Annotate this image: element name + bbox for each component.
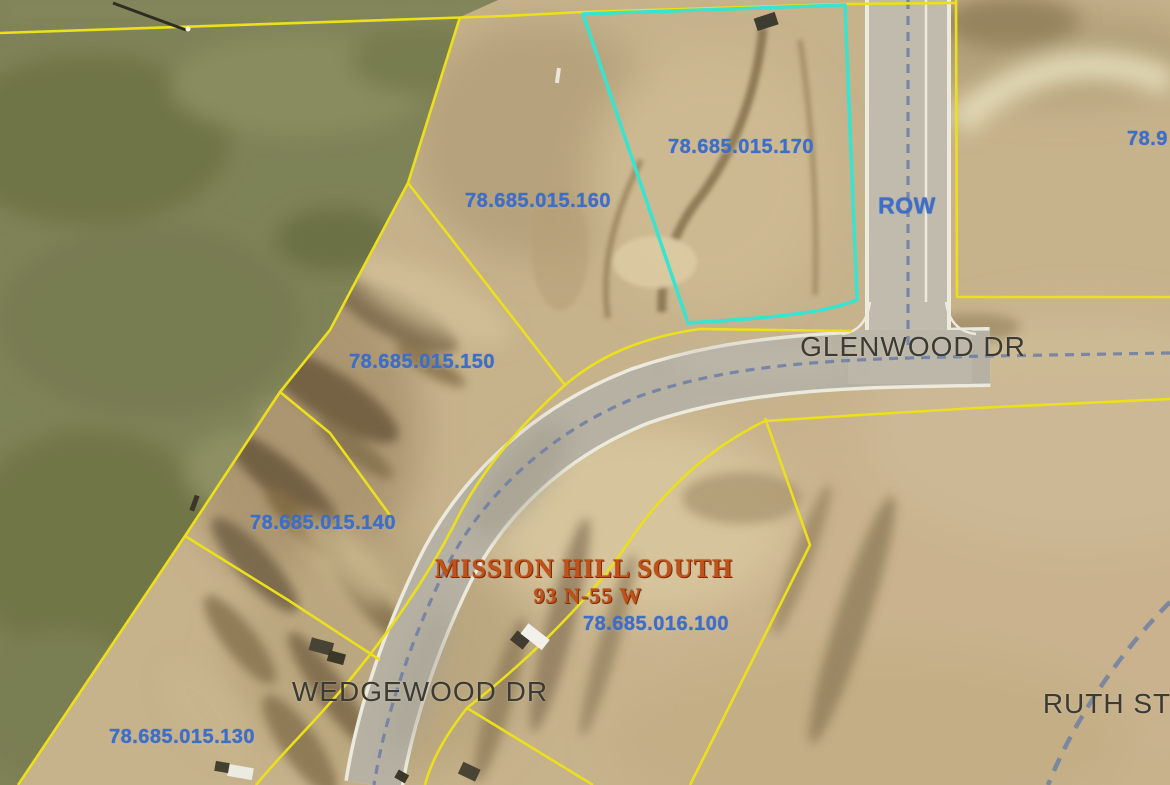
gis-map-viewport[interactable]: 78.685.015.170 78.685.015.160 78.685.015… <box>0 0 1170 785</box>
map-canvas <box>0 0 1170 785</box>
